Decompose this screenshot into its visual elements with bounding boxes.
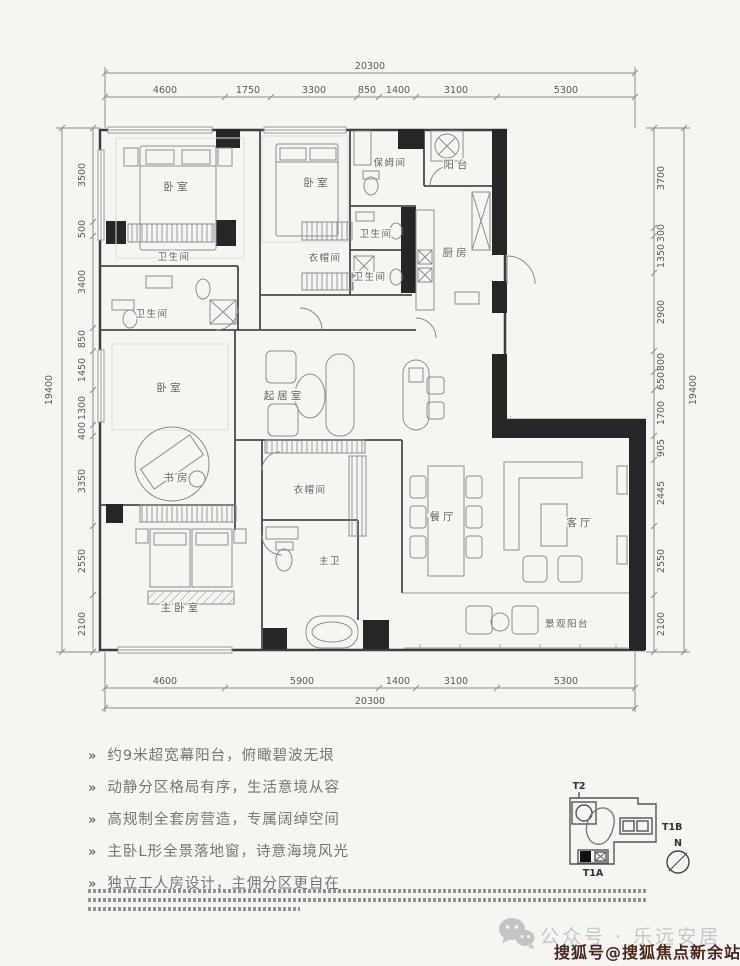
bullet-icon: » <box>88 813 97 828</box>
room-label-kitchen: 厨房 <box>443 246 470 259</box>
dim-label: 3100 <box>444 85 468 96</box>
disclaimer-line <box>88 889 646 893</box>
dim-label: 1450 <box>77 358 88 382</box>
door-arcs <box>216 166 535 555</box>
dim-label: 3700 <box>656 166 667 190</box>
feature-item: » 主卧L形全景落地窗，诗意海境风光 <box>88 840 418 861</box>
room-label-bath1: 卫生间 <box>157 251 190 263</box>
dim-label: 2100 <box>77 612 88 636</box>
structural-columns <box>106 129 646 650</box>
room-label-bath3: 卫生间 <box>359 228 392 240</box>
dim-top-total: 20300 <box>355 61 385 72</box>
wechat-icon <box>498 916 536 952</box>
keyplan-label-t1b: T1B <box>662 822 682 833</box>
dim-label: 2900 <box>656 300 667 324</box>
room-label-master: 主卧室 <box>161 601 202 614</box>
room-label-dining: 餐厅 <box>430 510 457 523</box>
dim-label: 5300 <box>554 676 578 687</box>
dim-label: 5900 <box>290 676 314 687</box>
feature-item: » 高规制全套房营造，专属阔绰空间 <box>88 808 418 829</box>
room-label-living: 客厅 <box>567 516 594 529</box>
room-label-bath2: 卫生间 <box>135 308 168 320</box>
key-plan: T2 T1B T1A N <box>538 768 718 890</box>
floorplan-page: 20300 4600 1750 3300 850 1400 3100 5300 … <box>0 0 740 966</box>
disclaimer-line <box>88 898 646 902</box>
bullet-icon: » <box>88 749 97 764</box>
dim-right-total: 19400 <box>688 375 699 405</box>
unit-location-marker <box>580 851 591 862</box>
dim-label: 3350 <box>77 469 88 493</box>
dim-left-total: 19400 <box>44 375 55 405</box>
room-label-cloak2: 衣帽间 <box>293 484 326 496</box>
room-label-master-bath: 主卫 <box>319 555 341 567</box>
room-label-view-balcony: 景观阳台 <box>545 618 589 630</box>
room-label-family: 起居室 <box>264 389 305 402</box>
dim-label: 3500 <box>77 163 88 187</box>
feature-item: » 约9米超宽幕阳台，俯瞰碧波无垠 <box>88 744 418 765</box>
dim-label: 2445 <box>656 481 667 505</box>
dim-label: 850 <box>77 330 88 348</box>
dim-label: 300 <box>656 224 667 242</box>
feature-text: 主卧L形全景落地窗，诗意海境风光 <box>107 840 349 861</box>
feature-text: 高规制全套房营造，专属阔绰空间 <box>107 808 340 829</box>
dim-label: 1350 <box>656 244 667 268</box>
room-label-nanny: 保姆间 <box>373 157 406 169</box>
dim-label: 3100 <box>444 676 468 687</box>
room-label-cloak1: 衣帽间 <box>308 252 341 264</box>
dim-label: 4600 <box>153 85 177 96</box>
bullet-icon: » <box>88 781 97 796</box>
dim-label: 4600 <box>153 676 177 687</box>
room-label-study: 书房 <box>164 471 191 484</box>
floor-plan: 20300 4600 1750 3300 850 1400 3100 5300 … <box>0 0 740 730</box>
dim-label: 905 <box>656 439 667 457</box>
keyplan-label-t1a: T1A <box>583 868 604 879</box>
dim-label: 2550 <box>77 549 88 573</box>
feature-item: » 动静分区格局有序，生活意境从容 <box>88 776 418 797</box>
north-arrow-icon: N <box>667 838 689 873</box>
dim-bottom-total: 20300 <box>355 696 385 707</box>
furniture <box>112 131 627 648</box>
dim-label: 2100 <box>656 612 667 636</box>
room-label-bedroom1: 卧室 <box>164 180 191 193</box>
dim-label: 1750 <box>236 85 260 96</box>
dim-label: 850 <box>358 85 376 96</box>
keyplan-label-t2: T2 <box>572 781 585 792</box>
feature-text: 约9米超宽幕阳台，俯瞰碧波无垠 <box>107 744 334 765</box>
dim-label: 800 <box>656 353 667 371</box>
dim-label: 3300 <box>302 85 326 96</box>
room-label-bedroom2: 卧室 <box>304 176 331 189</box>
disclaimer-line <box>88 907 300 911</box>
dim-label: 1300 <box>77 396 88 420</box>
dim-label: 500 <box>77 220 88 238</box>
sohu-watermark-text: 搜狐号@搜狐焦点新余站 <box>554 939 740 963</box>
room-label-bath4: 卫生间 <box>353 271 386 283</box>
dim-label: 2550 <box>656 549 667 573</box>
bullet-icon: » <box>88 845 97 860</box>
room-label-balcony-top: 阳台 <box>444 158 471 171</box>
dim-label: 5300 <box>554 85 578 96</box>
dim-label: 1700 <box>656 401 667 425</box>
dim-label: 400 <box>77 422 88 440</box>
north-label: N <box>674 838 682 849</box>
dim-label: 1400 <box>386 85 410 96</box>
dim-label: 650 <box>656 372 667 390</box>
feature-list: » 约9米超宽幕阳台，俯瞰碧波无垠 » 动静分区格局有序，生活意境从容 » 高规… <box>88 744 418 904</box>
feature-text: 动静分区格局有序，生活意境从容 <box>107 776 340 797</box>
watermark-area: 公众号 · 乐远安居 搜狐号@搜狐焦点新余站 <box>492 912 740 964</box>
dim-label: 3400 <box>77 270 88 294</box>
dim-label: 1400 <box>386 676 410 687</box>
room-label-bedroom3: 卧室 <box>157 381 184 394</box>
